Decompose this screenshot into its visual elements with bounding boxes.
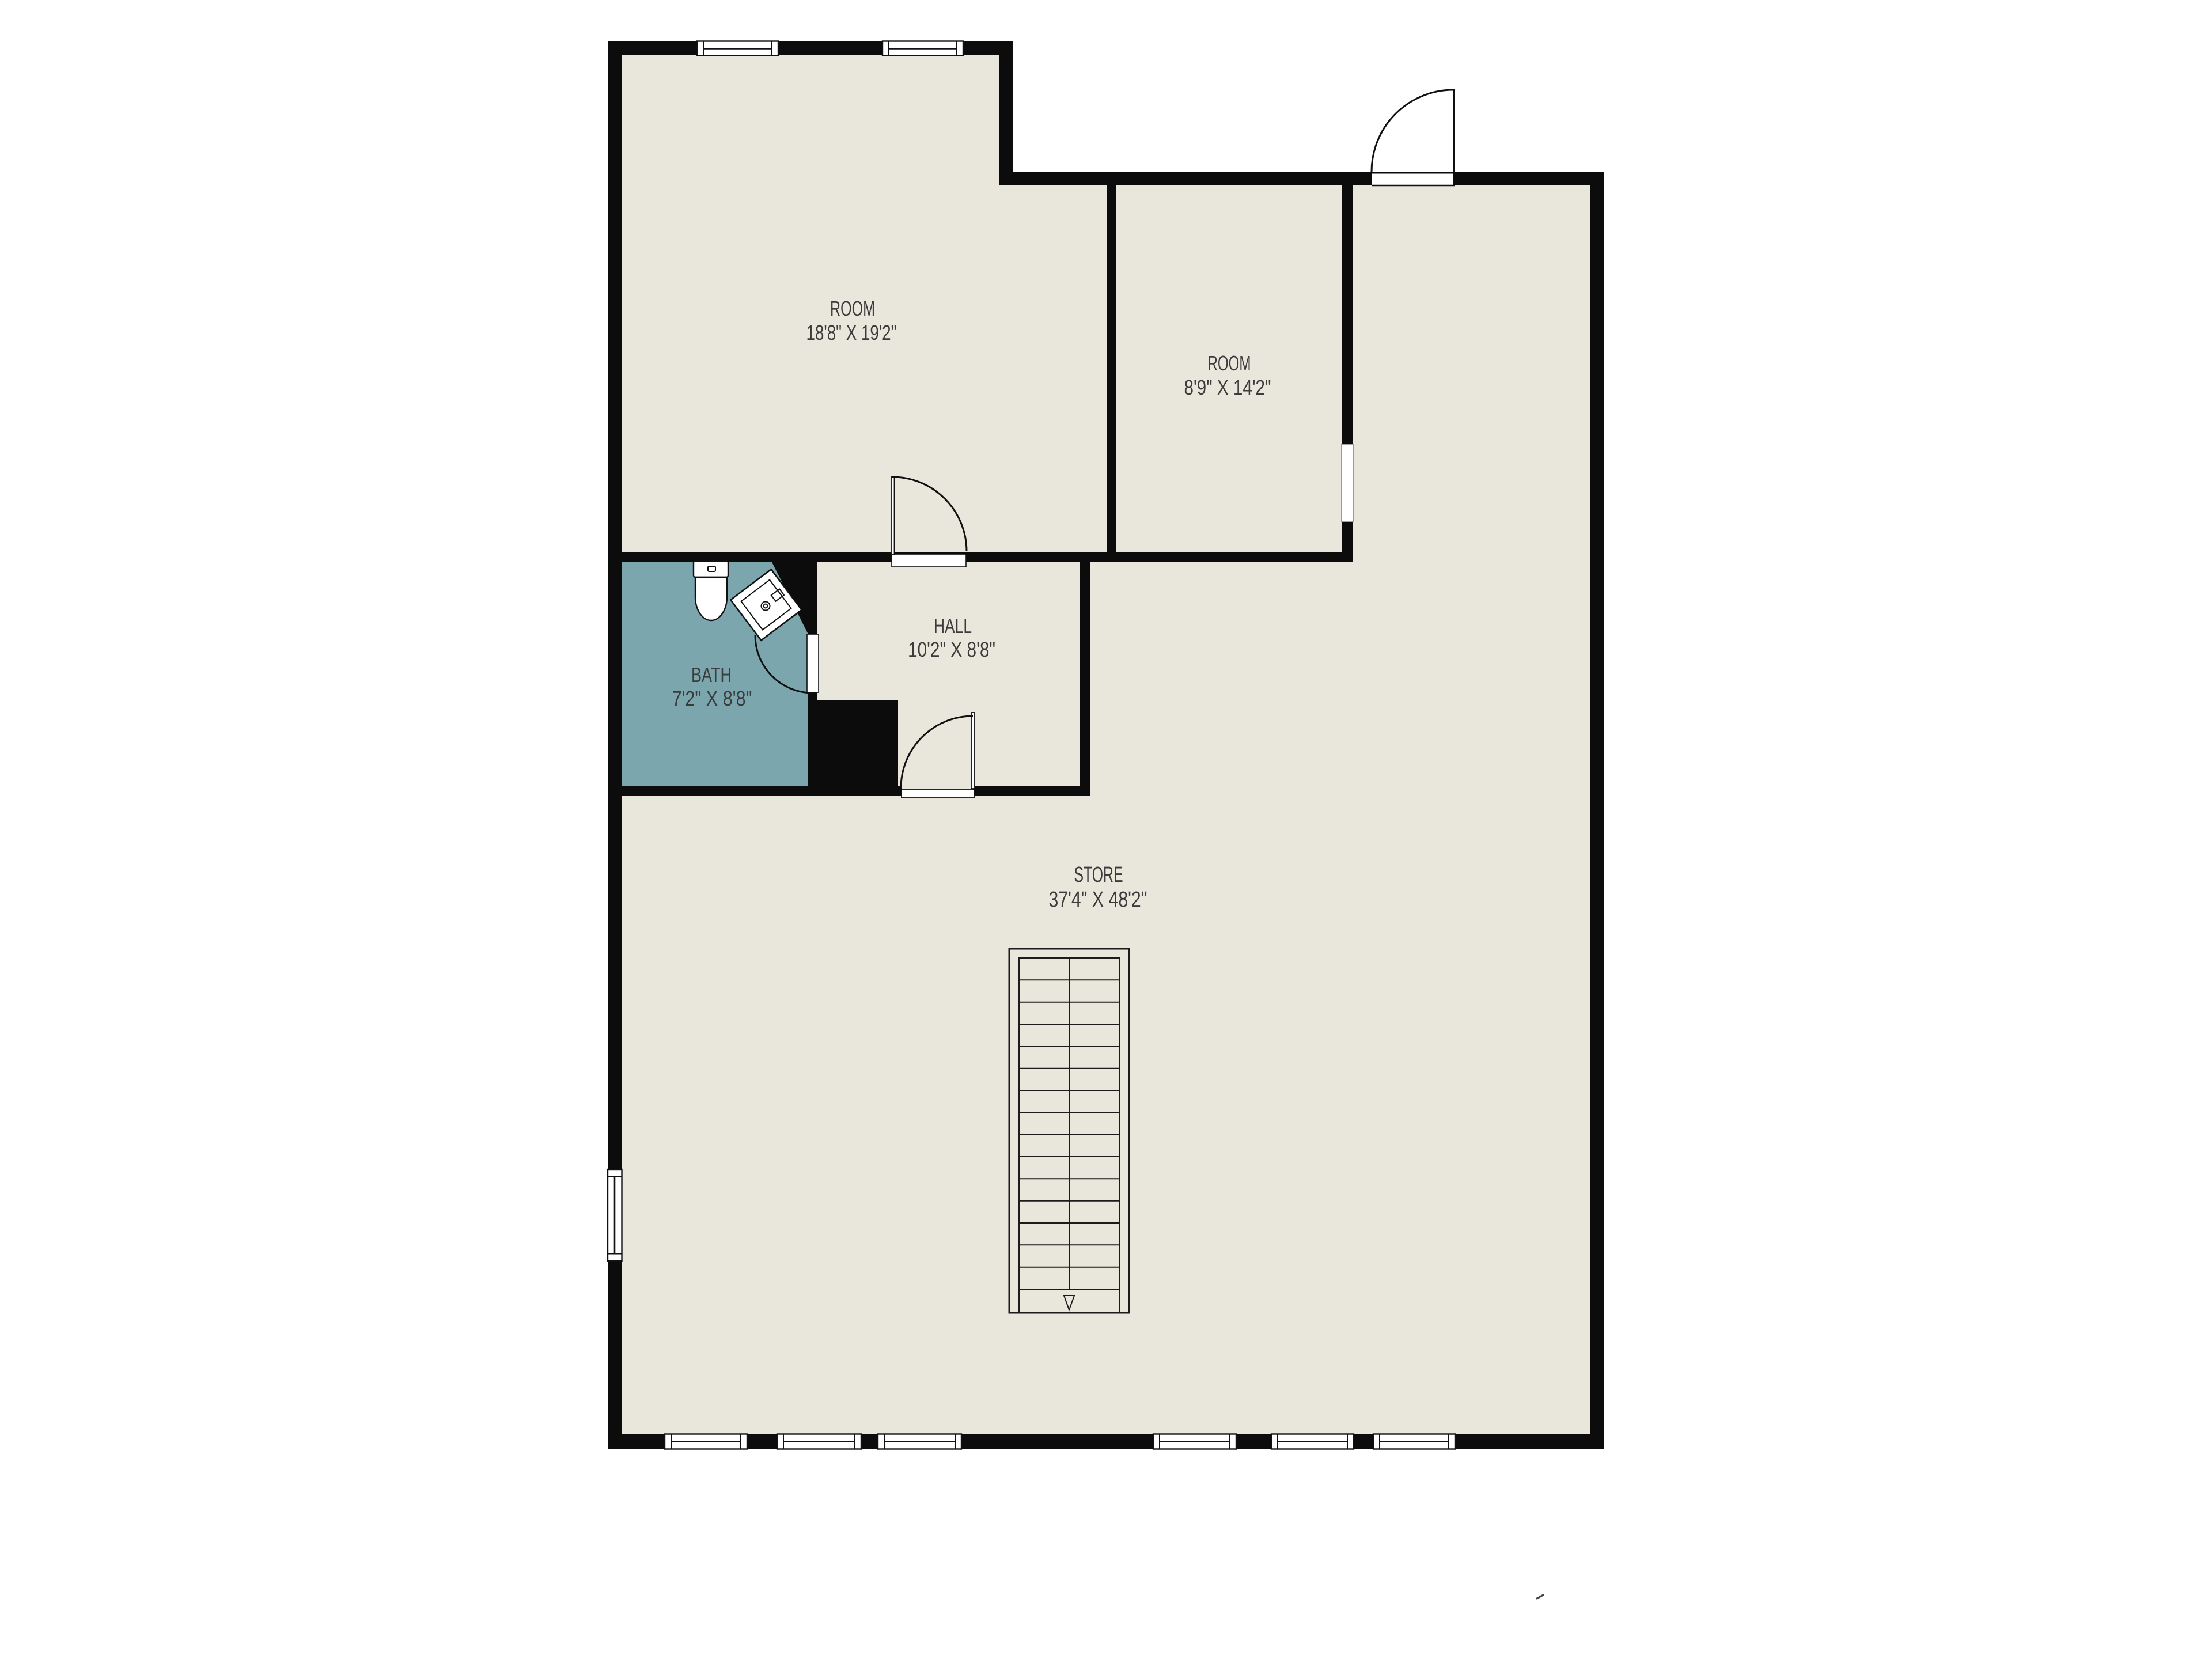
- svg-text:8'9" X 14'2": 8'9" X 14'2": [1184, 376, 1271, 399]
- svg-text:18'8" X 19'2": 18'8" X 19'2": [806, 321, 897, 344]
- svg-text:STORE: STORE: [1074, 863, 1123, 887]
- svg-text:ROOM: ROOM: [830, 297, 875, 320]
- svg-text:HALL: HALL: [934, 614, 972, 638]
- svg-text:7'2" X 8'8": 7'2" X 8'8": [672, 687, 752, 710]
- svg-text:10'2" X 8'8": 10'2" X 8'8": [908, 638, 995, 661]
- svg-text:ROOM: ROOM: [1208, 351, 1251, 375]
- svg-text:BATH: BATH: [691, 663, 732, 687]
- svg-text:37'4" X 48'2": 37'4" X 48'2": [1049, 888, 1147, 912]
